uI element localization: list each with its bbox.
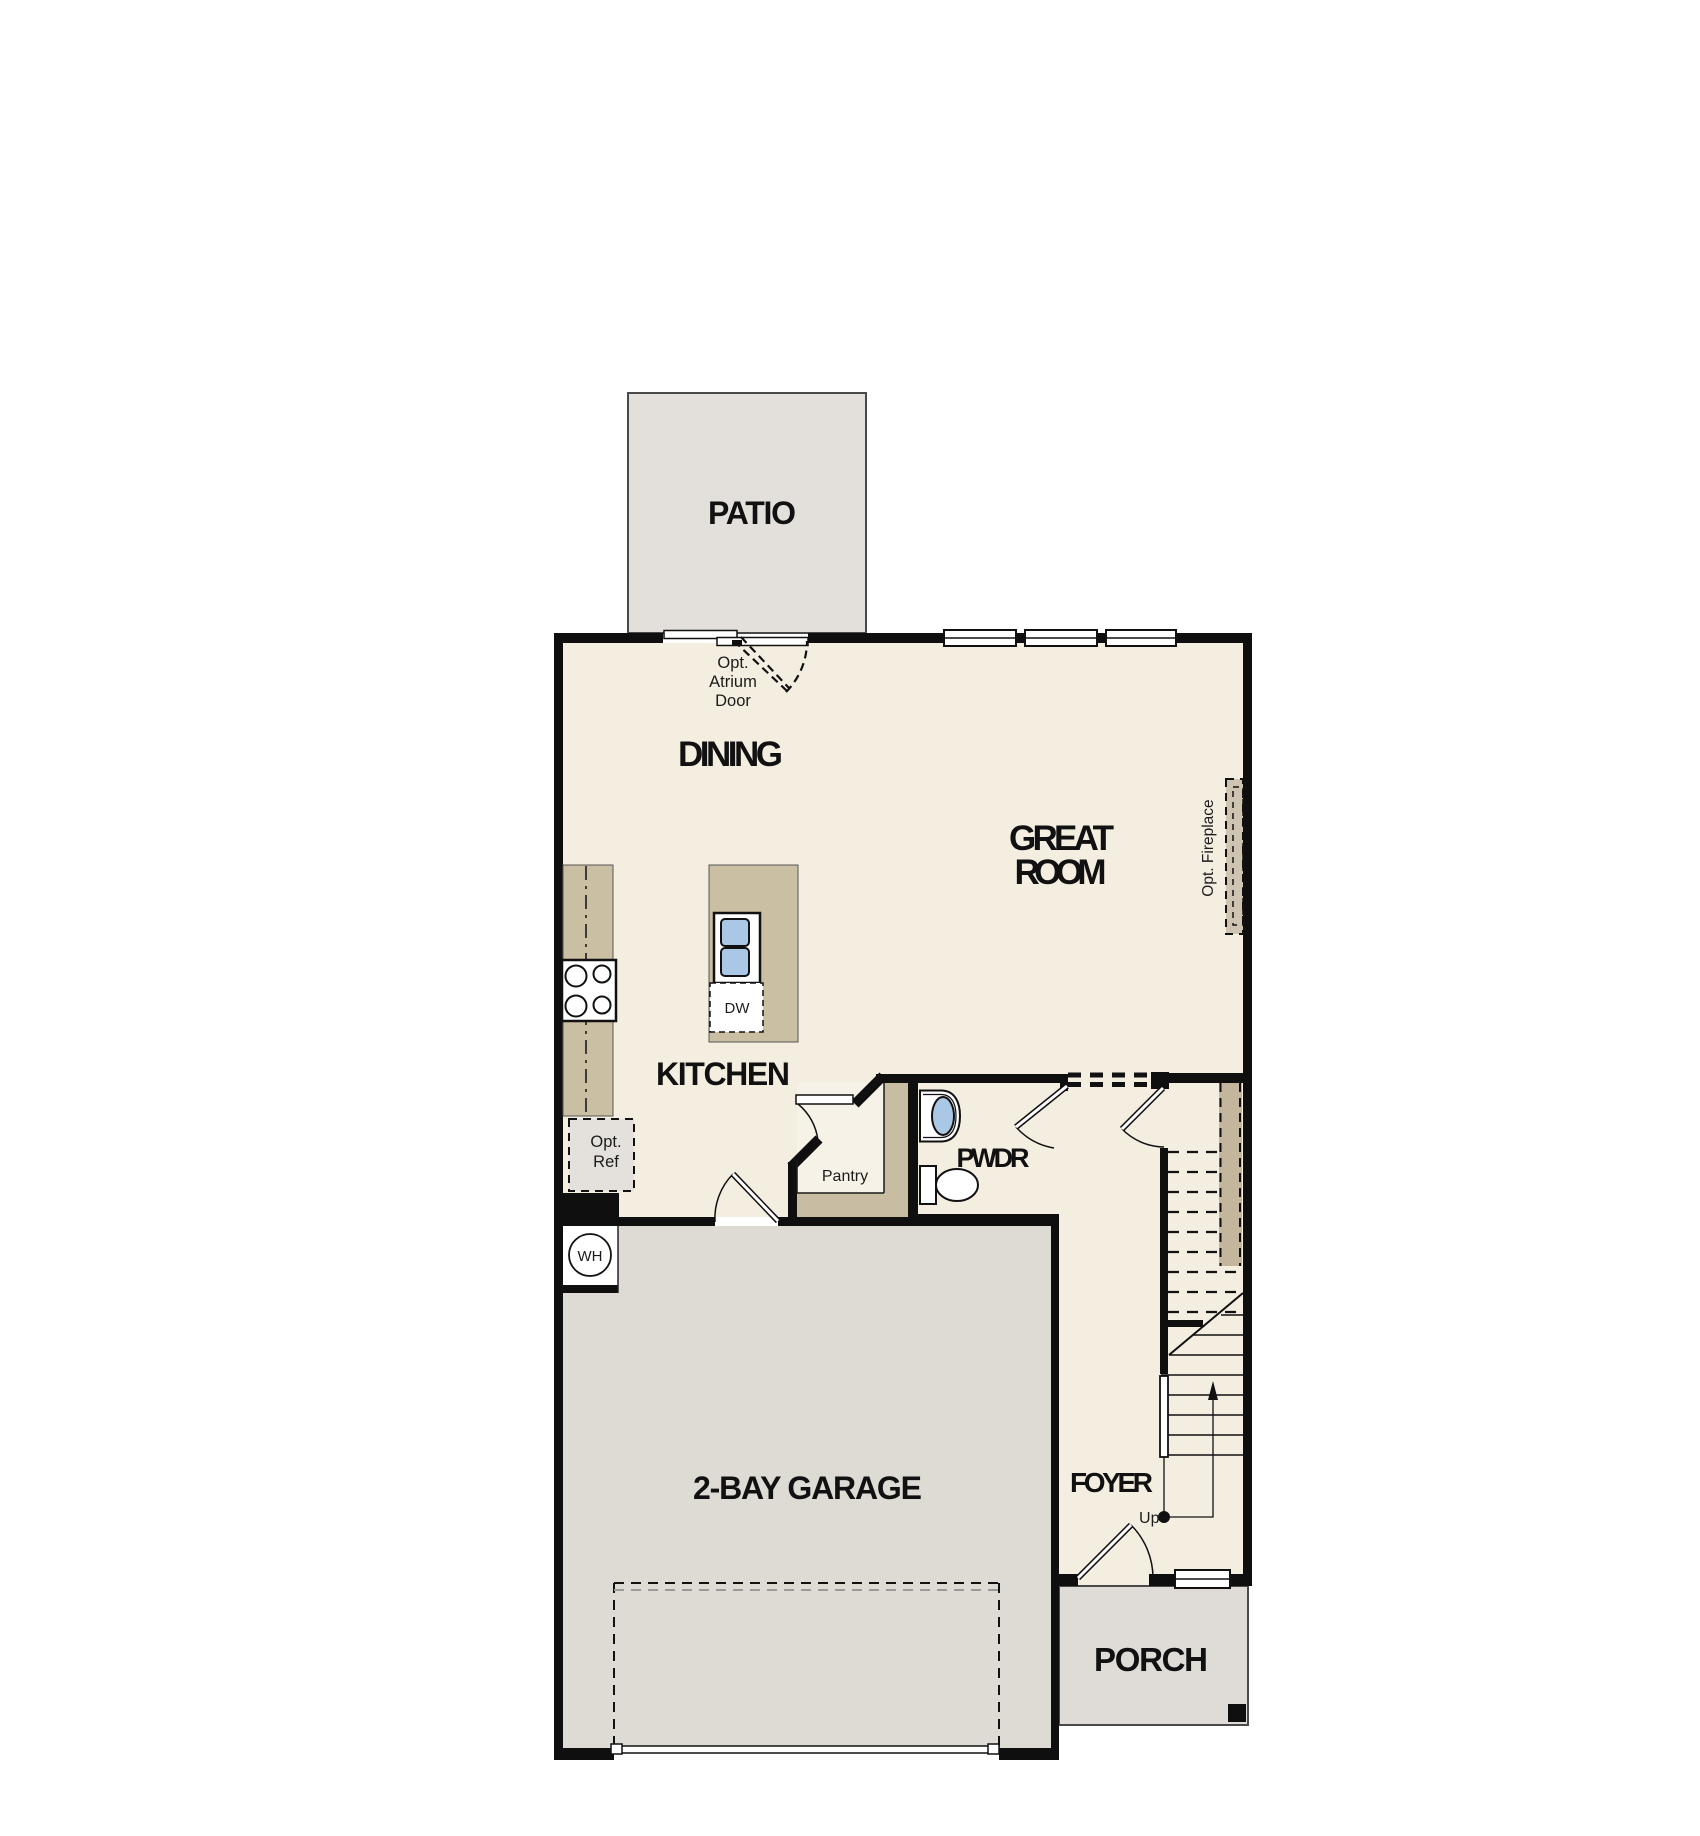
svg-text:Up: Up bbox=[1139, 1510, 1160, 1527]
svg-text:ROOM: ROOM bbox=[1015, 853, 1107, 892]
svg-text:PATIO: PATIO bbox=[708, 495, 796, 531]
svg-text:FOYER: FOYER bbox=[1070, 1467, 1153, 1498]
svg-text:Atrium: Atrium bbox=[709, 673, 757, 691]
svg-text:PWDR: PWDR bbox=[957, 1143, 1030, 1173]
svg-text:Ref: Ref bbox=[593, 1153, 619, 1171]
svg-text:Opt.: Opt. bbox=[717, 654, 748, 672]
svg-text:DINING: DINING bbox=[678, 735, 783, 774]
svg-text:KITCHEN: KITCHEN bbox=[656, 1056, 790, 1092]
svg-text:Opt.: Opt. bbox=[590, 1133, 621, 1151]
svg-text:WH: WH bbox=[578, 1248, 603, 1265]
svg-text:2-BAY GARAGE: 2-BAY GARAGE bbox=[693, 1470, 922, 1506]
svg-text:Door: Door bbox=[715, 692, 751, 710]
svg-text:Pantry: Pantry bbox=[822, 1168, 868, 1185]
svg-text:PORCH: PORCH bbox=[1094, 1641, 1208, 1678]
svg-text:DW: DW bbox=[725, 1000, 751, 1017]
svg-text:Opt. Fireplace: Opt. Fireplace bbox=[1200, 799, 1217, 896]
